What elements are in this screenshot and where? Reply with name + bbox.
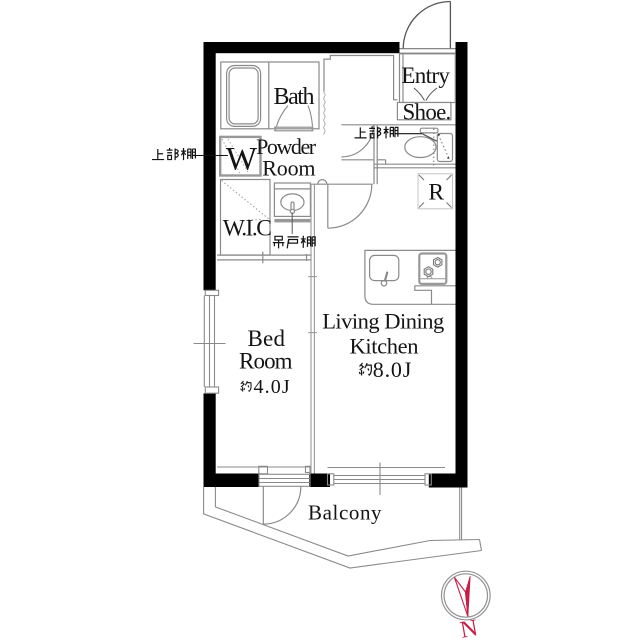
svg-text:Bath: Bath: [274, 84, 315, 110]
svg-text:Balcony: Balcony: [308, 501, 382, 525]
svg-text:R: R: [428, 179, 444, 205]
svg-text:Living Dining: Living Dining: [322, 309, 444, 334]
svg-text:Bed: Bed: [247, 326, 285, 351]
svg-text:W: W: [226, 141, 258, 177]
svg-text:Room: Room: [262, 156, 315, 181]
svg-text:Shoe.: Shoe.: [403, 99, 452, 124]
svg-text:Room: Room: [239, 349, 293, 374]
svg-text:Entry: Entry: [401, 63, 450, 88]
svg-text:8.0J: 8.0J: [373, 357, 412, 382]
svg-text:Kitchen: Kitchen: [350, 334, 419, 359]
svg-text:4.0J: 4.0J: [254, 376, 290, 398]
svg-text:W.I.C: W.I.C: [223, 215, 272, 241]
